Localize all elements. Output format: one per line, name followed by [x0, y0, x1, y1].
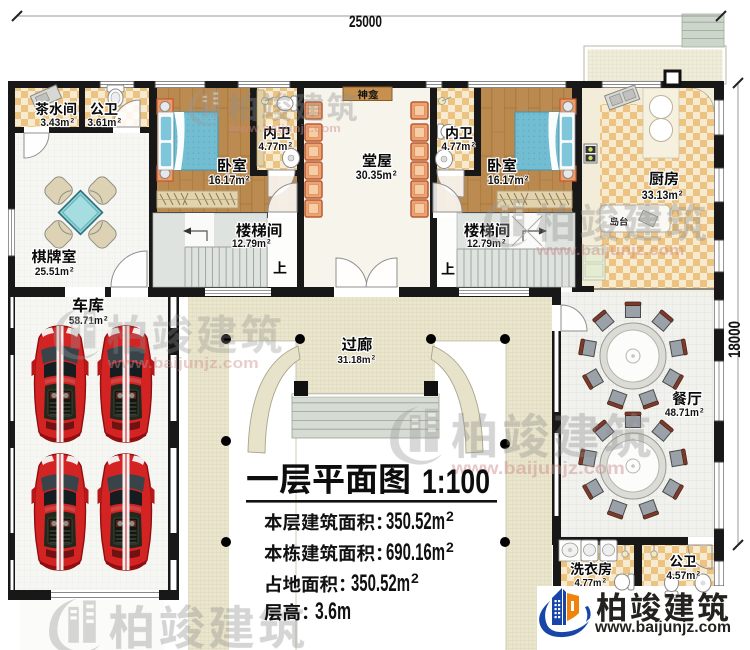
svg-text:2: 2	[104, 316, 108, 323]
svg-text:2: 2	[411, 570, 419, 586]
svg-text:2: 2	[446, 539, 454, 555]
svg-text:31.18m: 31.18m	[338, 354, 371, 366]
svg-text:25.51m: 25.51m	[35, 266, 69, 278]
svg-text:2: 2	[246, 174, 250, 182]
svg-text:2: 2	[525, 174, 529, 182]
svg-text:3.6m: 3.6m	[315, 598, 351, 625]
svg-text:30.35m: 30.35m	[356, 170, 392, 182]
svg-text:16.17m: 16.17m	[488, 175, 524, 187]
svg-text:4.57m: 4.57m	[666, 570, 695, 582]
svg-text:www.baijunjz.com: www.baijunjz.com	[107, 355, 259, 372]
svg-text:16.17m: 16.17m	[209, 175, 245, 187]
svg-text:2: 2	[471, 142, 475, 149]
svg-text:2: 2	[696, 571, 700, 578]
svg-text:18000: 18000	[725, 321, 744, 358]
svg-text:www.baijunjz.com: www.baijunjz.com	[594, 619, 731, 636]
svg-text:4.77m: 4.77m	[575, 577, 602, 589]
svg-text:690.16m: 690.16m	[386, 539, 445, 566]
svg-text:2: 2	[393, 169, 397, 177]
svg-text:2: 2	[679, 189, 683, 197]
svg-text:2: 2	[288, 142, 292, 149]
svg-text:2: 2	[700, 408, 704, 415]
svg-text:2: 2	[70, 267, 74, 274]
svg-text:4.77m: 4.77m	[258, 141, 287, 153]
svg-text:2: 2	[603, 578, 607, 585]
svg-text:2: 2	[267, 239, 271, 246]
svg-text:2: 2	[117, 118, 121, 125]
svg-text:2: 2	[372, 355, 376, 362]
svg-text:www.baijunjz.com: www.baijunjz.com	[228, 123, 341, 135]
svg-text:12.79m: 12.79m	[232, 238, 266, 250]
svg-text:25000: 25000	[349, 12, 382, 31]
svg-text:350.52m: 350.52m	[386, 508, 445, 535]
svg-text:1:100: 1:100	[422, 463, 490, 501]
svg-text:48.71m: 48.71m	[665, 407, 699, 419]
svg-text:3.61m: 3.61m	[87, 117, 116, 129]
svg-text:33.13m: 33.13m	[642, 190, 678, 202]
svg-text:4.77m: 4.77m	[441, 141, 470, 153]
svg-text:2: 2	[446, 508, 454, 524]
svg-text:3.43m: 3.43m	[40, 117, 69, 129]
svg-text:2: 2	[70, 118, 74, 125]
svg-text:www.baijunjz.com: www.baijunjz.com	[535, 243, 684, 259]
svg-text:350.52m: 350.52m	[351, 570, 410, 597]
